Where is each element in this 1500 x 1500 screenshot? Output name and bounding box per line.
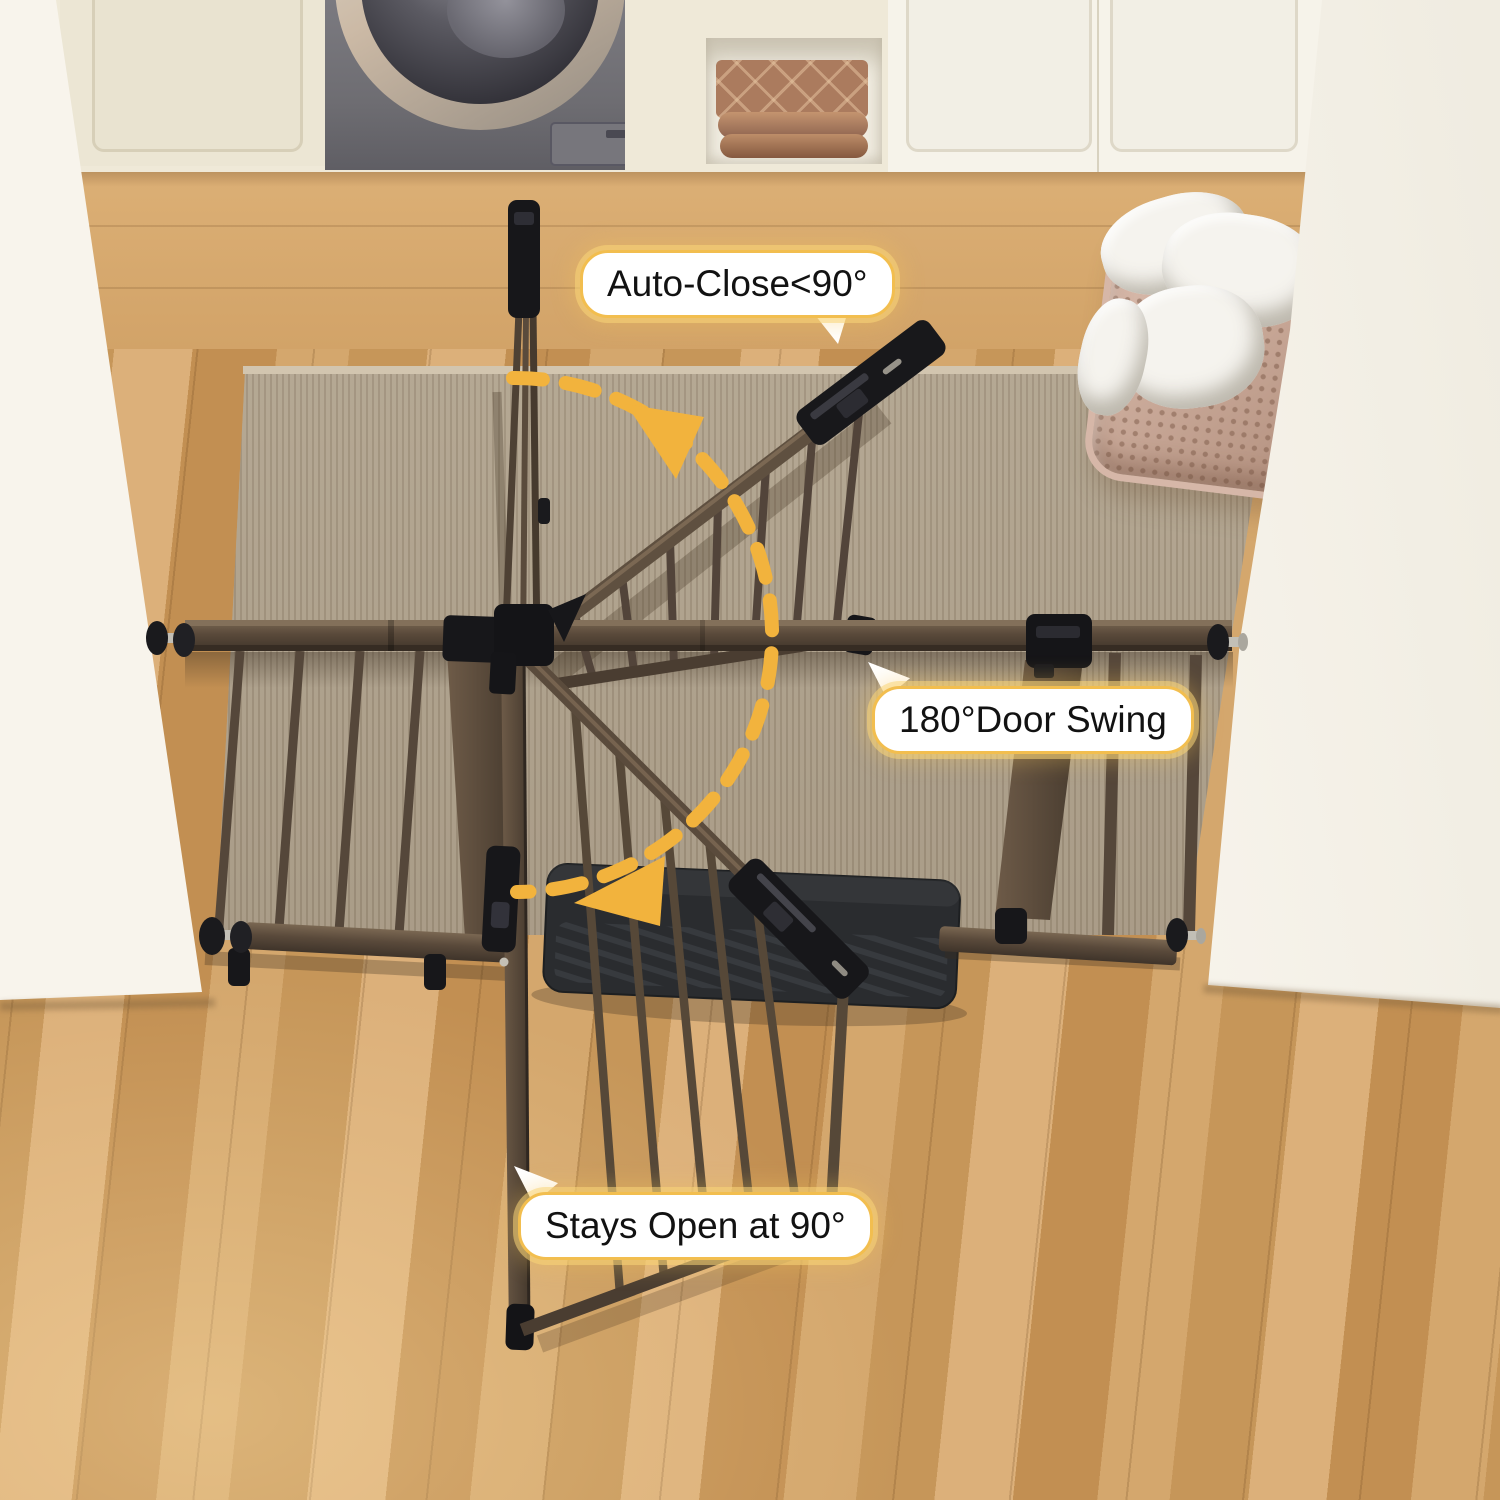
- auto-close-arrowhead: [626, 404, 704, 479]
- swing-annotation: [0, 0, 1500, 1500]
- callout-stays-open: Stays Open at 90°: [518, 1192, 873, 1260]
- callout-stays-open-text: Stays Open at 90°: [545, 1205, 846, 1246]
- callout-door-swing-text: 180°Door Swing: [899, 699, 1167, 740]
- gate-product-scene: Auto-Close<90° 180°Door Swing Stays Open…: [0, 0, 1500, 1500]
- callout-auto-close: Auto-Close<90°: [580, 250, 895, 318]
- callout-door-swing: 180°Door Swing: [872, 686, 1194, 754]
- callout-auto-close-text: Auto-Close<90°: [607, 263, 868, 304]
- swing-arc: [513, 378, 772, 892]
